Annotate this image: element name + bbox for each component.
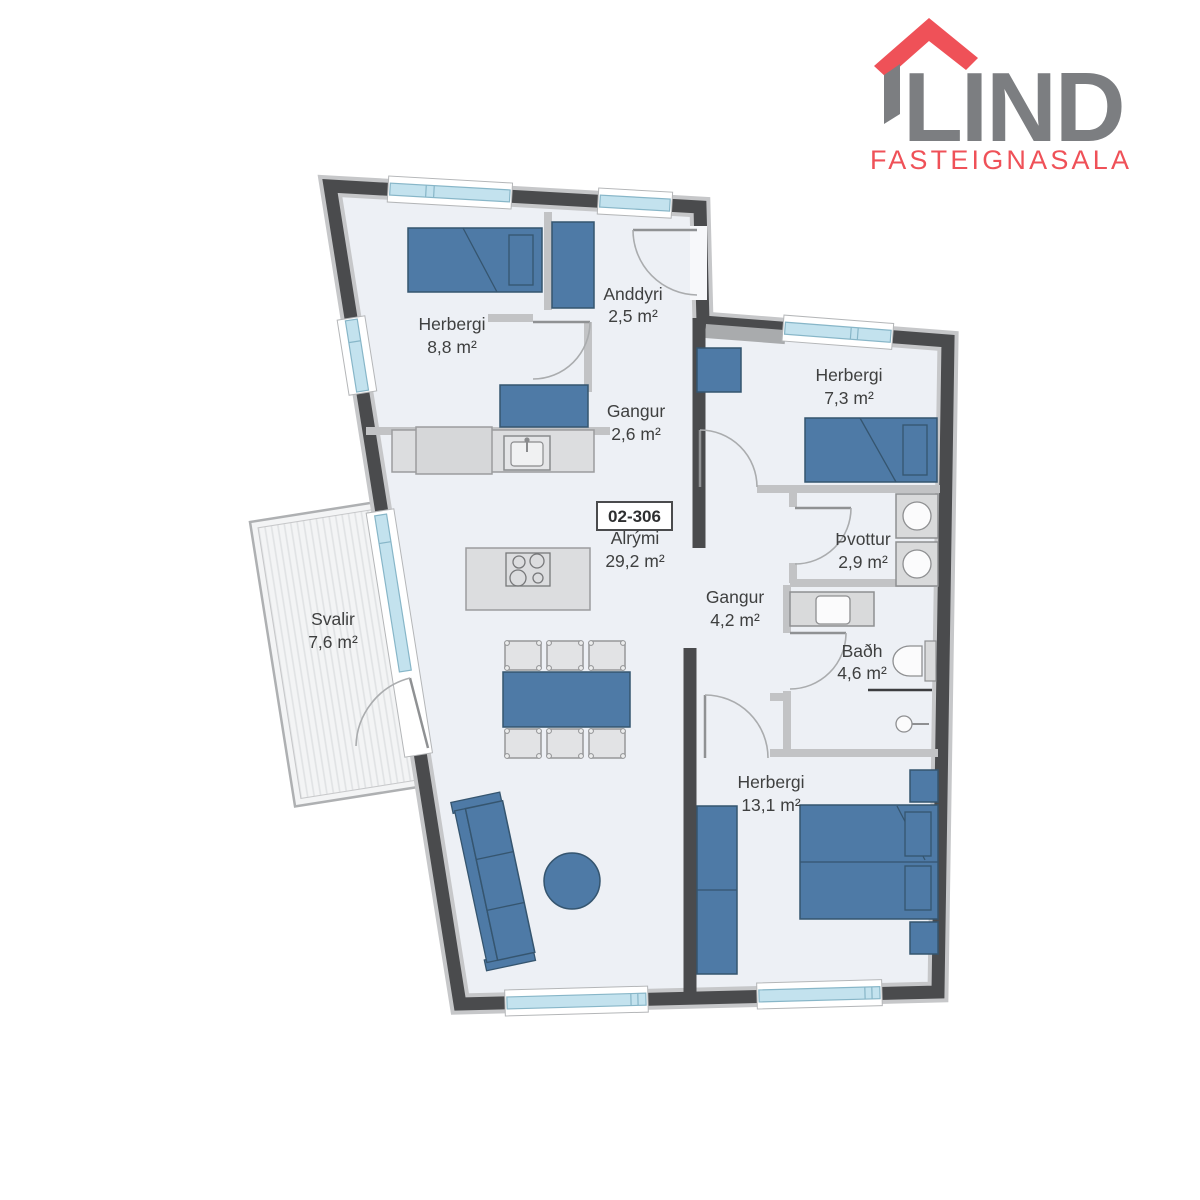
room-name: Anddyri xyxy=(603,284,662,304)
window-icon xyxy=(505,986,649,1016)
fridge-icon xyxy=(416,427,492,474)
chair-icon xyxy=(547,641,584,671)
single-bed-icon xyxy=(408,228,542,292)
nightstand-icon xyxy=(910,770,938,802)
room-area: 4,6 m² xyxy=(837,663,887,683)
chair-icon xyxy=(505,641,542,671)
room-name: Gangur xyxy=(706,587,765,607)
room-area: 2,5 m² xyxy=(608,306,658,326)
room-name: Baðh xyxy=(842,641,883,661)
bathroom-sink-icon xyxy=(816,596,850,624)
chair-icon xyxy=(589,729,626,759)
dining-table-icon xyxy=(503,672,630,727)
logo-tagline-text: FASTEIGNASALA xyxy=(870,145,1132,175)
room-area: 29,2 m² xyxy=(605,551,664,571)
room-area: 7,3 m² xyxy=(824,388,874,408)
chair-icon xyxy=(589,641,626,671)
dining-set xyxy=(503,641,630,759)
wardrobe-icon xyxy=(697,348,741,392)
room-name: Svalir xyxy=(311,609,355,629)
floor-plan: Herbergi 8,8 m² Anddyri 2,5 m² Gangur 2,… xyxy=(0,0,1200,1200)
room-name: Herbergi xyxy=(815,365,882,385)
nightstand-icon xyxy=(910,922,938,954)
single-bed-icon xyxy=(805,418,937,482)
unit-number: 02-306 xyxy=(608,507,661,526)
room-name: Gangur xyxy=(607,401,666,421)
chair-icon xyxy=(505,729,542,759)
room-name: Herbergi xyxy=(737,772,804,792)
wardrobe-icon xyxy=(552,222,594,308)
room-area: 2,9 m² xyxy=(838,552,888,572)
cooktop-icon xyxy=(506,553,550,586)
closet-icon xyxy=(500,385,588,427)
chair-icon xyxy=(547,729,584,759)
room-area: 8,8 m² xyxy=(427,337,477,357)
sink-icon xyxy=(504,436,550,470)
coffee-table-icon xyxy=(544,853,600,909)
window-icon xyxy=(757,980,883,1009)
floor-plan-page: Herbergi 8,8 m² Anddyri 2,5 m² Gangur 2,… xyxy=(0,0,1200,1200)
room-name: Þvottur xyxy=(835,529,891,549)
window-icon xyxy=(597,188,672,218)
room-area: 2,6 m² xyxy=(611,424,661,444)
room-area: 13,1 m² xyxy=(741,795,800,815)
double-bed-icon xyxy=(800,805,938,919)
lind-logo: LIND FASTEIGNASALA xyxy=(870,18,1132,175)
room-name: Herbergi xyxy=(418,314,485,334)
wardrobe-icon xyxy=(697,806,737,974)
entry-doorway xyxy=(690,226,707,300)
unit-number-badge: 02-306 xyxy=(597,502,672,530)
room-area: 4,2 m² xyxy=(710,610,760,630)
room-area: 7,6 m² xyxy=(308,632,358,652)
